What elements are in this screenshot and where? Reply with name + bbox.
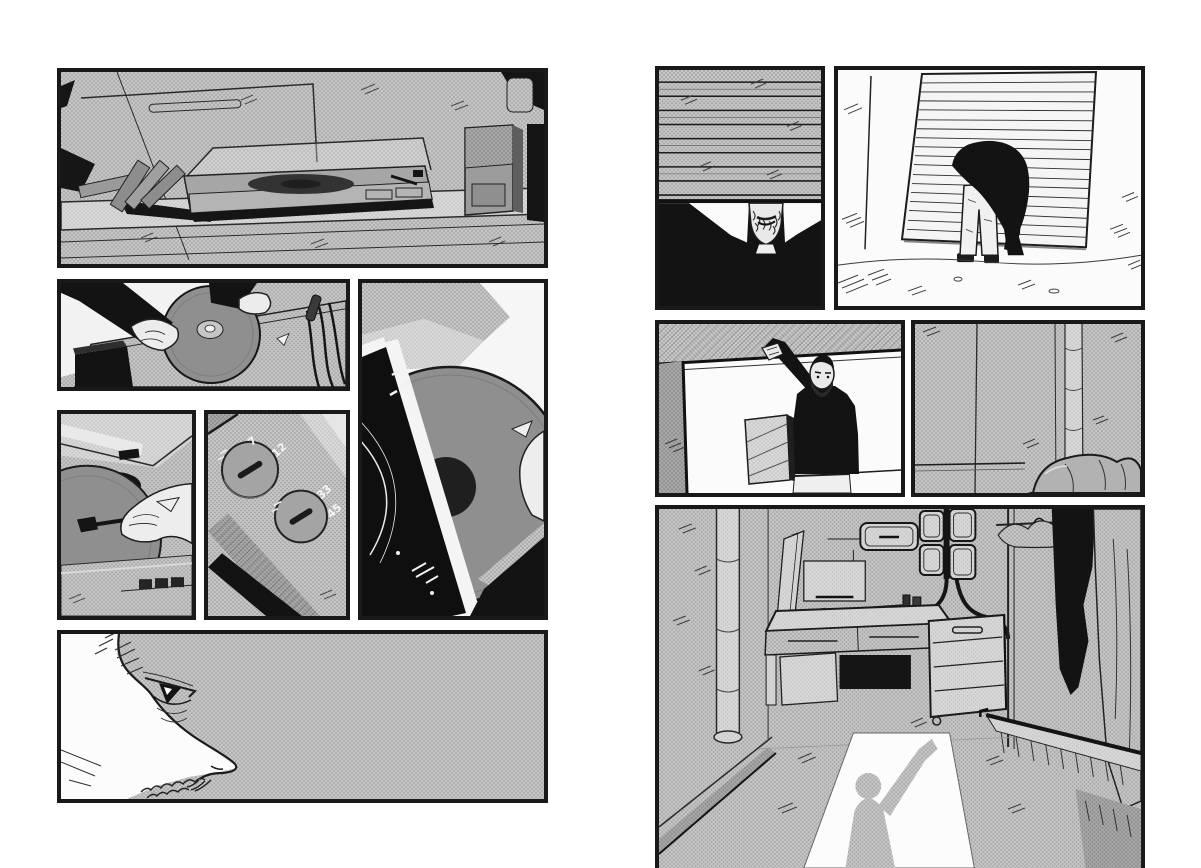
panel-placing-record bbox=[57, 279, 350, 391]
pipe bbox=[714, 509, 742, 743]
wall-panel bbox=[804, 561, 865, 601]
roller-shutter bbox=[659, 70, 821, 203]
panel-setting-tonearm bbox=[57, 410, 196, 620]
drawer-unit bbox=[929, 615, 1006, 725]
panel-record-and-sleeve bbox=[358, 279, 548, 620]
panel-listening-profile bbox=[57, 630, 548, 803]
panel-behind-the-shutter bbox=[655, 66, 825, 310]
panel-room-interior bbox=[655, 505, 1145, 868]
panel-speed-selector: 7 12 33 45 bbox=[204, 410, 350, 620]
manga-spread: 7 12 33 45 bbox=[0, 0, 1201, 868]
turntable bbox=[184, 138, 434, 222]
panel-pulling-the-shutter bbox=[655, 320, 905, 497]
panel-turntable-shelf bbox=[57, 68, 548, 268]
speaker bbox=[465, 125, 523, 215]
stooping-figure bbox=[952, 141, 1029, 263]
panel-ducking-under-shutter bbox=[834, 66, 1145, 310]
panel-room-wall bbox=[911, 320, 1145, 497]
crate bbox=[745, 415, 798, 484]
